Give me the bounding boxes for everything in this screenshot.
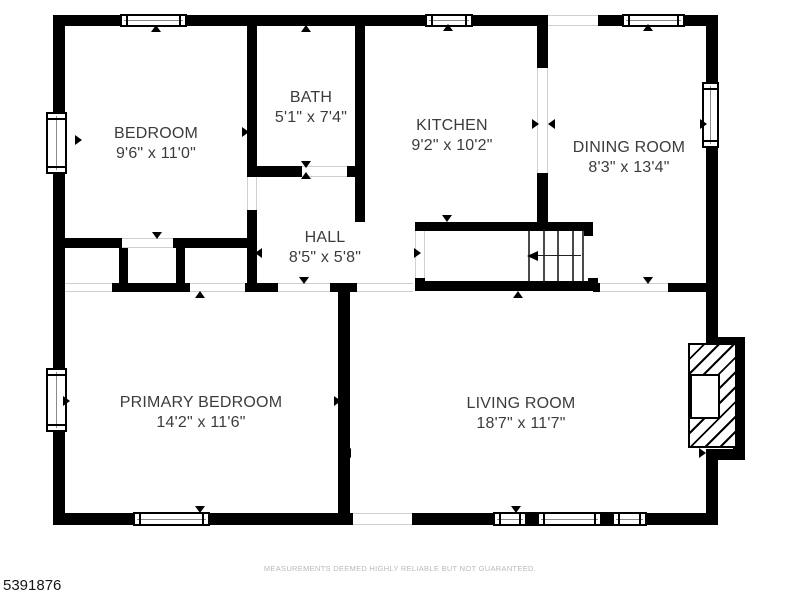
opening-edge-line	[247, 177, 248, 210]
door-marker-arrow	[301, 172, 311, 179]
room-dimensions: 18'7" x 11'7"	[467, 414, 576, 434]
wall-opening	[548, 15, 598, 26]
window	[537, 512, 602, 526]
window-glass-line	[56, 116, 57, 170]
room-label-hall: HALL8'5" x 5'8"	[289, 228, 361, 268]
opening-edge-line	[600, 291, 668, 292]
door-marker-arrow	[643, 24, 653, 31]
room-dimensions: 8'5" x 5'8"	[289, 248, 361, 268]
wall-segment	[112, 283, 190, 292]
room-label-living-room: LIVING ROOM18'7" x 11'7"	[467, 394, 576, 434]
opening-edge-line	[122, 247, 173, 248]
window-frame-tick	[543, 514, 545, 524]
wall-segment	[706, 15, 718, 82]
wall-opening	[600, 283, 668, 292]
wall-segment	[706, 148, 718, 337]
window	[493, 512, 527, 526]
wall-opening	[537, 68, 548, 173]
wall-opening	[357, 283, 413, 292]
opening-edge-line	[65, 283, 112, 284]
wall-segment	[668, 283, 706, 292]
door-marker-arrow	[75, 135, 82, 145]
door-marker-arrow	[301, 25, 311, 32]
window-glass-line	[626, 20, 681, 21]
window-frame-tick	[594, 514, 596, 524]
door-marker-arrow	[358, 119, 365, 129]
room-dimensions: 5'1" x 7'4"	[275, 108, 347, 128]
window-frame-tick	[48, 166, 65, 168]
door-marker-arrow	[301, 161, 311, 168]
window	[133, 512, 210, 526]
opening-edge-line	[357, 283, 413, 284]
wall-segment	[53, 174, 65, 368]
window	[702, 82, 719, 148]
wall-segment	[247, 166, 302, 177]
stair-direction-arrow	[527, 251, 538, 261]
window-frame-tick	[677, 16, 679, 25]
opening-edge-line	[600, 283, 668, 284]
wall-segment	[706, 449, 745, 460]
wall-opening	[65, 283, 112, 292]
door-marker-arrow	[152, 232, 162, 239]
door-marker-arrow	[699, 448, 706, 458]
door-marker-arrow	[442, 215, 452, 222]
wall-segment	[247, 26, 257, 177]
fireplace-firebox	[690, 374, 720, 419]
room-label-bath: BATH5'1" x 7'4"	[275, 88, 347, 128]
window-glass-line	[56, 372, 57, 428]
wall-segment	[583, 222, 593, 236]
window-frame-tick	[618, 514, 620, 524]
room-dimensions: 9'2" x 10'2"	[411, 136, 492, 156]
wall-segment	[602, 512, 612, 526]
window-frame-tick	[704, 140, 717, 142]
floor-plan-page: BEDROOM9'6" x 11'0"BATH5'1" x 7'4"KITCHE…	[0, 0, 800, 600]
door-marker-arrow	[443, 24, 453, 31]
window-frame-tick	[139, 514, 141, 524]
wall-opening	[247, 177, 257, 210]
door-marker-arrow	[548, 119, 555, 129]
wall-segment	[537, 15, 548, 68]
wall-segment	[415, 278, 425, 291]
wall-segment	[598, 15, 622, 26]
wall-segment	[415, 281, 598, 291]
room-name: DINING ROOM	[573, 138, 685, 158]
door-marker-arrow	[195, 291, 205, 298]
window-frame-tick	[499, 514, 501, 524]
window-frame-tick	[126, 16, 128, 25]
wall-segment	[53, 513, 133, 525]
stair-tread	[572, 231, 574, 281]
window-frame-tick	[519, 514, 521, 524]
door-marker-arrow	[255, 248, 262, 258]
wall-segment	[245, 283, 278, 292]
plan-number: 5391876	[3, 577, 61, 594]
window-frame-tick	[48, 374, 65, 376]
window-frame-tick	[48, 424, 65, 426]
wall-opening	[122, 238, 173, 248]
disclaimer-text: MEASUREMENTS DEEMED HIGHLY RELIABLE BUT …	[0, 564, 800, 573]
room-name: PRIMARY BEDROOM	[120, 393, 282, 413]
door-marker-arrow	[344, 448, 351, 458]
wall-segment	[210, 513, 353, 525]
opening-edge-line	[122, 238, 173, 239]
room-label-dining-room: DINING ROOM8'3" x 13'4"	[573, 138, 685, 178]
room-name: BATH	[275, 88, 347, 108]
door-marker-arrow	[700, 119, 707, 129]
window-glass-line	[710, 86, 711, 144]
door-marker-arrow	[63, 396, 70, 406]
opening-edge-line	[353, 524, 412, 525]
window	[46, 112, 67, 174]
room-label-kitchen: KITCHEN9'2" x 10'2"	[411, 116, 492, 156]
window	[612, 512, 647, 526]
window-frame-tick	[48, 118, 65, 120]
room-label-bedroom: BEDROOM9'6" x 11'0"	[114, 124, 198, 164]
window-frame-tick	[202, 514, 204, 524]
room-name: KITCHEN	[411, 116, 492, 136]
wall-segment	[65, 238, 122, 248]
window-glass-line	[137, 519, 206, 520]
wall-segment	[415, 222, 593, 231]
opening-edge-line	[357, 291, 413, 292]
window-glass-line	[541, 519, 598, 520]
wall-segment	[53, 432, 65, 525]
floor-plan-canvas: BEDROOM9'6" x 11'0"BATH5'1" x 7'4"KITCHE…	[0, 0, 800, 560]
window	[622, 14, 685, 27]
wall-segment	[706, 460, 718, 525]
wall-segment	[527, 512, 537, 526]
wall-segment	[173, 238, 257, 248]
opening-edge-line	[353, 513, 412, 514]
wall-segment	[119, 248, 128, 283]
door-marker-arrow	[195, 506, 205, 513]
opening-edge-line	[548, 25, 598, 26]
stair-direction-line	[538, 255, 581, 256]
door-marker-arrow	[511, 506, 521, 513]
opening-edge-line	[65, 291, 112, 292]
room-name: LIVING ROOM	[467, 394, 576, 414]
door-marker-arrow	[334, 396, 341, 406]
wall-segment	[593, 283, 600, 292]
window-frame-tick	[639, 514, 641, 524]
stair-tread	[557, 231, 559, 281]
opening-edge-line	[256, 177, 257, 210]
room-dimensions: 9'6" x 11'0"	[114, 144, 198, 164]
wall-opening	[353, 513, 412, 525]
room-dimensions: 14'2" x 11'6"	[120, 413, 282, 433]
window-frame-tick	[431, 16, 433, 25]
wall-segment	[347, 166, 355, 177]
door-marker-arrow	[242, 127, 249, 137]
wall-opening	[278, 283, 330, 292]
window-frame-tick	[179, 16, 181, 25]
door-marker-arrow	[414, 248, 421, 258]
wall-segment	[412, 513, 493, 525]
door-marker-arrow	[532, 119, 539, 129]
window-frame-tick	[465, 16, 467, 25]
window-frame-tick	[628, 16, 630, 25]
wall-segment	[647, 513, 706, 525]
opening-edge-line	[190, 283, 245, 284]
room-name: BEDROOM	[114, 124, 198, 144]
stair-tread	[582, 231, 584, 281]
opening-edge-line	[548, 15, 598, 16]
room-name: HALL	[289, 228, 361, 248]
wall-segment	[537, 173, 548, 222]
window-glass-line	[429, 20, 469, 21]
window-glass-line	[124, 20, 183, 21]
door-marker-arrow	[513, 291, 523, 298]
room-dimensions: 8'3" x 13'4"	[573, 158, 685, 178]
stair-tread	[543, 231, 545, 281]
door-marker-arrow	[151, 25, 161, 32]
room-label-primary-bedroom: PRIMARY BEDROOM14'2" x 11'6"	[120, 393, 282, 433]
door-marker-arrow	[299, 277, 309, 284]
opening-edge-line	[424, 231, 425, 278]
window-frame-tick	[704, 88, 717, 90]
door-marker-arrow	[643, 277, 653, 284]
wall-segment	[53, 15, 65, 112]
opening-edge-line	[278, 291, 330, 292]
